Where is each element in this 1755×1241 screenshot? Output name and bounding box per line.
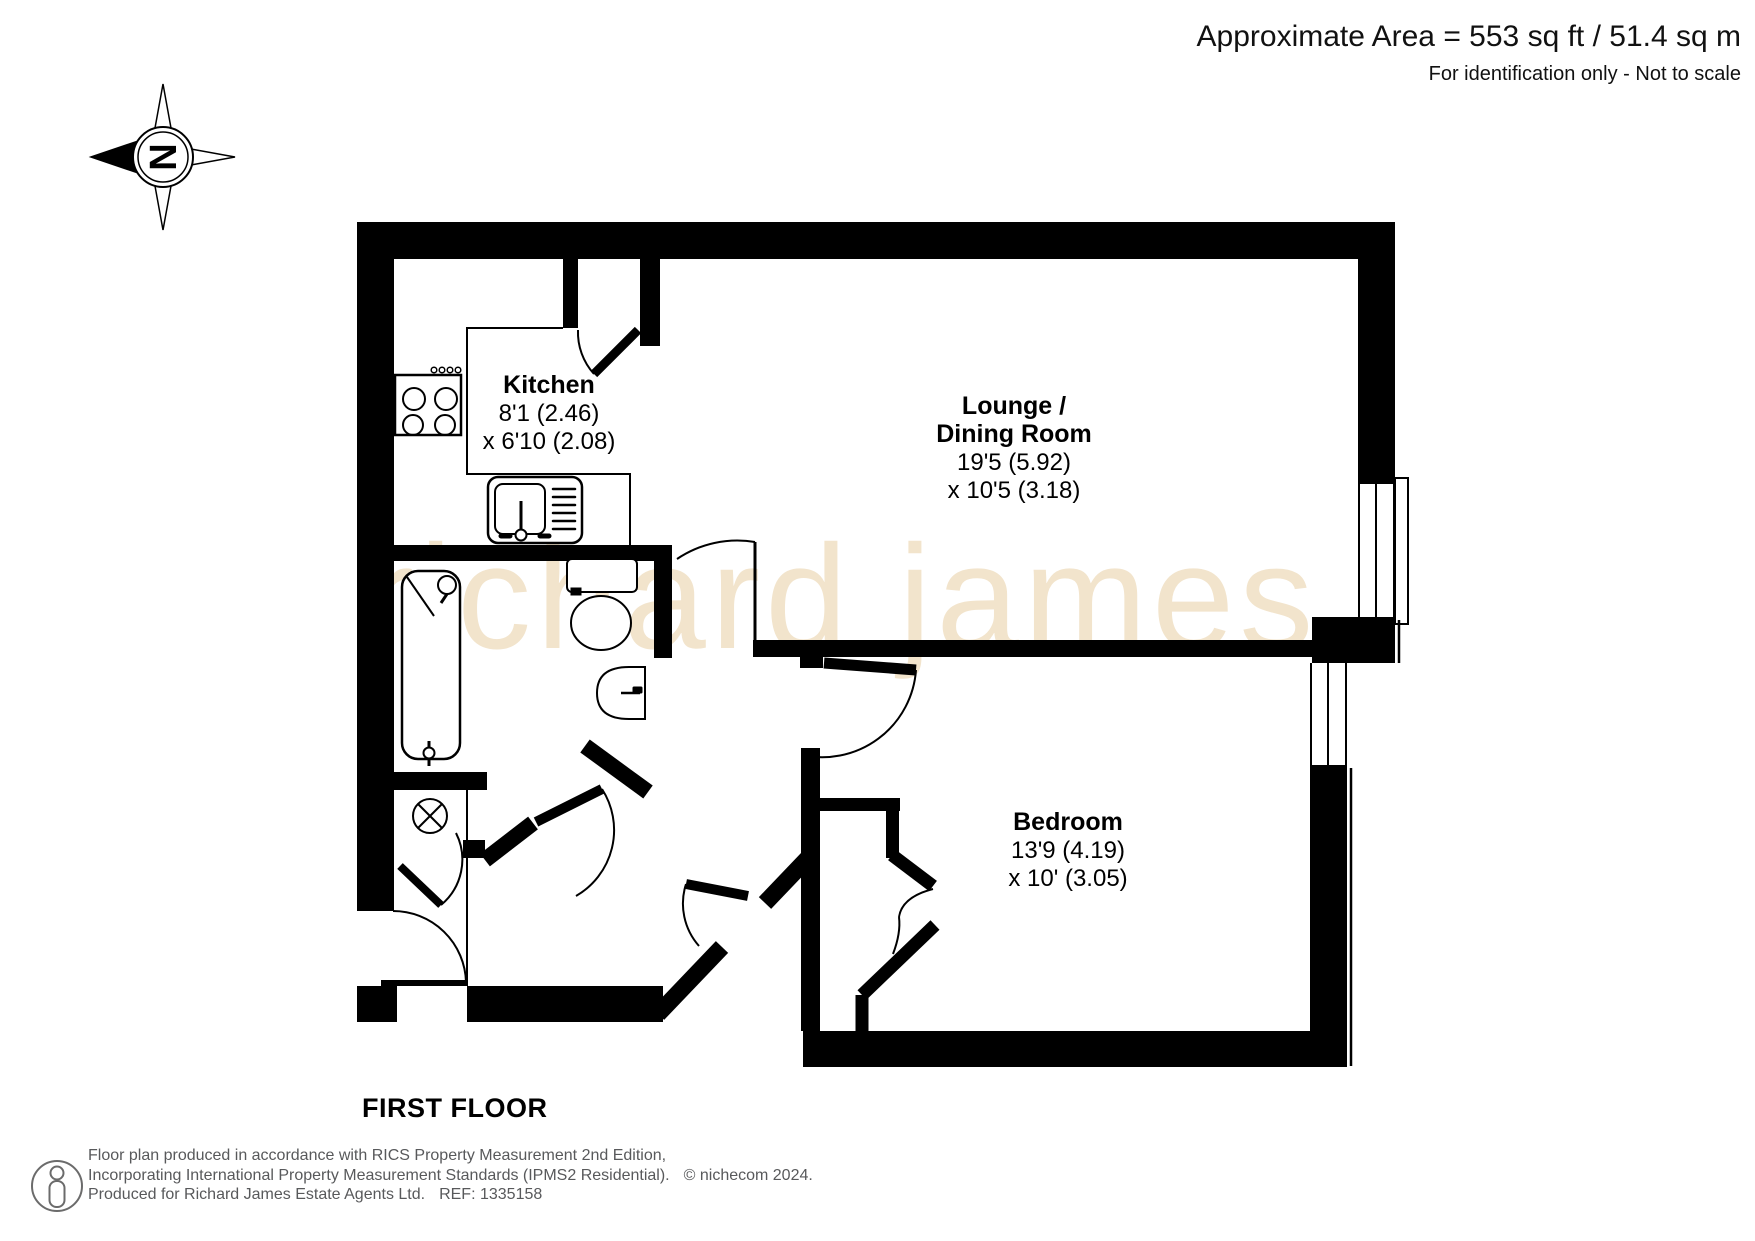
entrance-door-arc bbox=[393, 911, 466, 982]
lounge-window bbox=[1359, 478, 1408, 624]
extractor-symbol bbox=[413, 799, 447, 833]
footer-line3: Produced for Richard James Estate Agents… bbox=[88, 1185, 813, 1205]
bath bbox=[402, 571, 460, 766]
bathroom-door-leaf bbox=[536, 789, 602, 822]
cupboard-door-arc bbox=[441, 833, 462, 905]
bathroom-door-arc bbox=[576, 789, 614, 896]
kitchen-dim2: x 6'10 (2.08) bbox=[483, 428, 616, 455]
wall-shadow-lines bbox=[1351, 620, 1399, 1066]
bedroom-dim2: x 10' (3.05) bbox=[1008, 865, 1127, 892]
bedroom-label: Bedroom bbox=[1013, 808, 1123, 836]
footer-copyright: © nichecom 2024. bbox=[684, 1167, 813, 1184]
bedroom-door-arc bbox=[802, 670, 916, 757]
lounge-label-line2: Dining Room bbox=[936, 420, 1092, 448]
bifold-door-arc bbox=[899, 889, 933, 917]
footer-line2: Incorporating International Property Mea… bbox=[88, 1166, 813, 1186]
header: Approximate Area = 553 sq ft / 51.4 sq m… bbox=[1197, 20, 1741, 86]
bifold-door-arc bbox=[893, 917, 899, 954]
footer: Floor plan produced in accordance with R… bbox=[88, 1146, 813, 1205]
floorplan-page: richard james bbox=[0, 0, 1755, 1241]
kitchen-door-leaf bbox=[594, 330, 638, 374]
footer-line2-text: Incorporating International Property Mea… bbox=[88, 1167, 670, 1184]
compass: N bbox=[91, 84, 235, 230]
compass-letter: N bbox=[143, 143, 185, 170]
lounge-dim2: x 10'5 (3.18) bbox=[948, 477, 1081, 504]
approximate-area-text: Approximate Area = 553 sq ft / 51.4 sq m bbox=[1197, 20, 1741, 54]
inner-door-leaf bbox=[686, 884, 748, 896]
bedroom-dim1: 13'9 (4.19) bbox=[1011, 837, 1125, 864]
footer-line3-text: Produced for Richard James Estate Agents… bbox=[88, 1186, 425, 1203]
floorplan-drawing: richard james bbox=[0, 0, 1755, 1241]
lounge-dim1: 19'5 (5.92) bbox=[957, 449, 1071, 476]
footer-ref: REF: 1335158 bbox=[439, 1186, 542, 1203]
basin bbox=[597, 667, 645, 719]
stove bbox=[395, 367, 461, 435]
footer-line1: Floor plan produced in accordance with R… bbox=[88, 1146, 813, 1166]
kitchen-label: Kitchen bbox=[503, 371, 595, 399]
kitchen-dim1: 8'1 (2.46) bbox=[499, 400, 600, 427]
bedroom-door-leaf bbox=[824, 663, 916, 670]
inner-door-arc bbox=[683, 884, 699, 946]
kitchen-sink bbox=[488, 477, 582, 543]
cupboard-door-leaf bbox=[400, 866, 441, 905]
person-icon bbox=[32, 1161, 82, 1211]
lounge-label-line1: Lounge / bbox=[962, 392, 1066, 420]
kitchen-door-arc bbox=[578, 330, 594, 374]
floor-label: FIRST FLOOR bbox=[362, 1093, 547, 1124]
identification-note: For identification only - Not to scale bbox=[1197, 63, 1741, 86]
